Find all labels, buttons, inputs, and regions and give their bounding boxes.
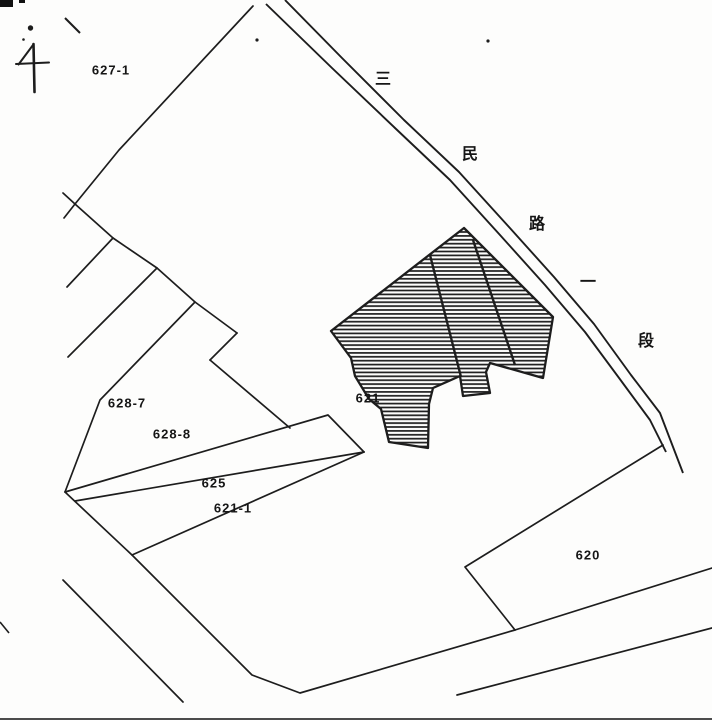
parcel-label-628-7: 628-7 [108, 396, 146, 411]
road-name-char-1: 三 [375, 65, 391, 89]
road-east-edge [285, 0, 683, 473]
road-name-char-3: 路 [529, 210, 545, 234]
parcel-label-627-1: 627-1 [92, 63, 130, 78]
parcel-label-621-1: 621-1 [214, 501, 252, 516]
map-linework [0, 0, 712, 720]
cadastral-map: 627-1 628-7 628-8 625 621-1 621 620 三 民 … [0, 0, 712, 720]
parcel-label-625: 625 [202, 476, 227, 491]
building-footprint [331, 228, 553, 448]
parcel-label-628-8: 628-8 [153, 427, 191, 442]
road-edge-lines [266, 0, 683, 473]
north-arrow-icon [16, 25, 49, 92]
road-name-char-2: 民 [462, 140, 478, 164]
road-name-char-4: 一 [580, 268, 596, 292]
road-name-char-5: 段 [638, 327, 654, 351]
parcel-label-620: 620 [576, 548, 601, 563]
parcel-label-621: 621 [356, 391, 381, 406]
building-outline [331, 228, 553, 448]
